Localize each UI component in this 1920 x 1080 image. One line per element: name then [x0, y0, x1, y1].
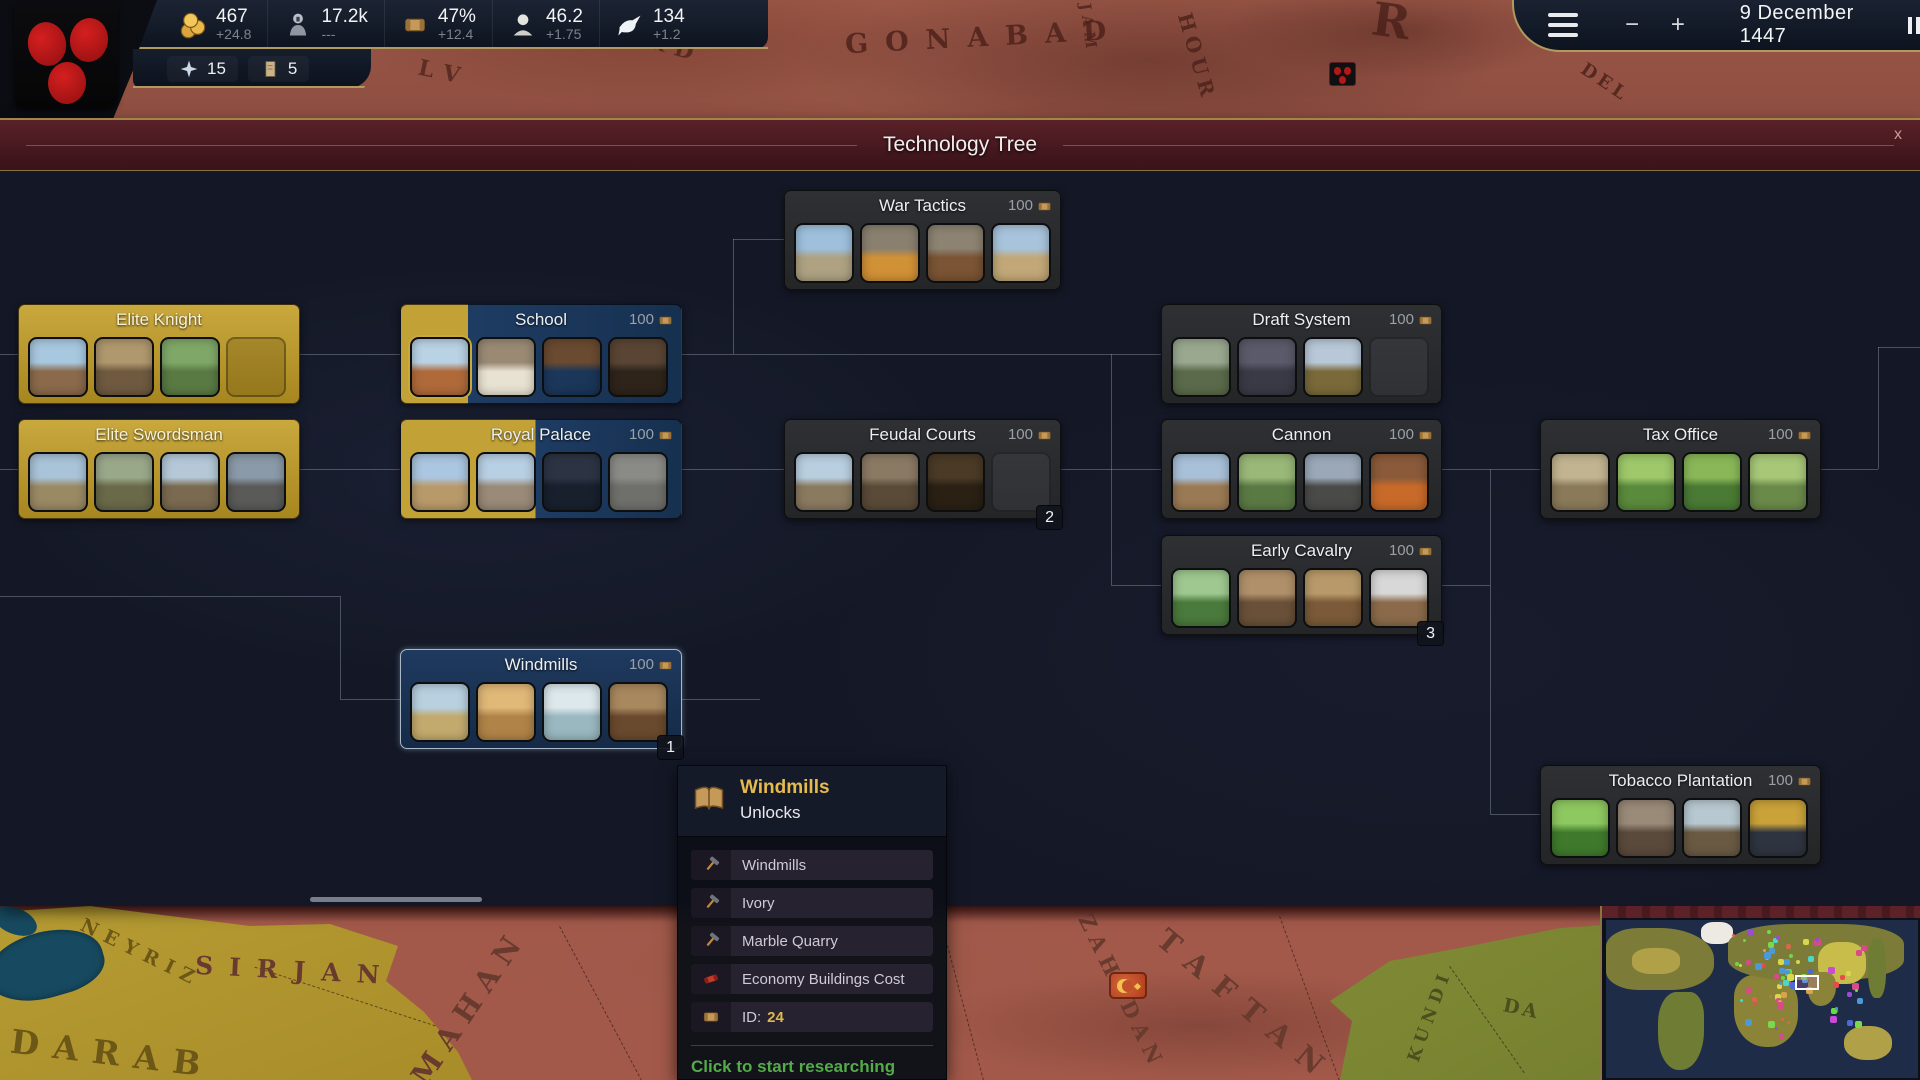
thumb-crop-rows [1682, 452, 1742, 512]
speed-plus-button[interactable]: + [1662, 11, 1694, 39]
scroll-icon [1796, 427, 1813, 441]
thumb-books [542, 337, 602, 397]
minimap-country-speck [1855, 1021, 1862, 1028]
minimap-landmass [1844, 1026, 1892, 1060]
minimap-country-speck [1808, 956, 1814, 962]
minimap-country-speck [1830, 1016, 1837, 1023]
player-country-flag[interactable] [14, 4, 118, 108]
minimap[interactable] [1600, 906, 1920, 1080]
minimap-landmass [1632, 948, 1680, 974]
tech-node-royal-palace[interactable]: Royal Palace100 [400, 419, 682, 519]
resource-delta: +12.4 [438, 27, 476, 42]
thumb-cavalry-charge [1303, 568, 1363, 628]
thumb-gold-emblem [1748, 798, 1808, 858]
thumb-manor-grounds [1748, 452, 1808, 512]
game-date: 9 December 1447 [1740, 2, 1896, 48]
minimap-country-speck [1774, 974, 1779, 979]
scroll-icon [657, 427, 674, 441]
thumb-vineyard [1171, 568, 1231, 628]
scroll-icon [1796, 773, 1813, 787]
thumb-scholars [608, 337, 668, 397]
tech-node-cost: 100 [1389, 311, 1414, 328]
scroll-icon [401, 11, 429, 39]
thumb-farmland [1237, 452, 1297, 512]
hammer-icon [691, 926, 731, 956]
minimap-country-speck [1747, 929, 1754, 936]
resource-delta: +1.2 [653, 27, 685, 42]
scroll-icon [691, 1002, 731, 1032]
minimap-country-speck [1745, 1019, 1752, 1026]
thumb-castle-walls [28, 452, 88, 512]
minimap-landmass [1658, 992, 1704, 1070]
minimap-landmass [1868, 938, 1886, 998]
thumb-plantation-vale [1682, 798, 1742, 858]
minimap-country-speck [1768, 1021, 1775, 1028]
tech-connector [300, 354, 400, 355]
resource-delta: +1.75 [546, 27, 583, 42]
minimap-country-speck [1861, 945, 1867, 951]
tech-node-elite-knight[interactable]: Elite Knight [18, 304, 300, 404]
tooltip-unlock-row: Ivory [691, 888, 933, 918]
tech-connector [1821, 469, 1878, 470]
ottoman-flag-marker[interactable] [1109, 972, 1147, 999]
red-scroll-icon [691, 964, 731, 994]
tooltip-row-label: Windmills [742, 857, 806, 874]
badge-prestige[interactable]: 15 [167, 56, 238, 82]
minimap-landmass [1734, 975, 1798, 1047]
tech-connector [0, 469, 18, 470]
thumb-school-building [410, 337, 470, 397]
tooltip-unlock-row: Windmills [691, 850, 933, 880]
thumb-soldier-band [94, 452, 154, 512]
thumb-night-tavern [542, 452, 602, 512]
minimap-country-speck [1833, 982, 1839, 988]
minimap-country-speck [1740, 999, 1743, 1002]
tech-connector [682, 469, 784, 470]
scroll-icon [1417, 427, 1434, 441]
tech-connector [340, 699, 400, 700]
tooltip-subtitle: Unlocks [740, 803, 830, 823]
minimap-country-speck [1752, 997, 1757, 1002]
minimap-country-speck [1847, 992, 1852, 997]
tech-connector [1111, 585, 1161, 586]
tooltip-row-label: ID: [742, 1009, 761, 1026]
minimap-country-speck [1755, 963, 1762, 970]
tech-node-war-tactics[interactable]: War Tactics100 [784, 190, 1061, 290]
minimap-country-speck [1828, 967, 1835, 974]
tooltip-row-label: Marble Quarry [742, 933, 838, 950]
paper-icon [260, 59, 280, 79]
tech-connector [1111, 469, 1161, 470]
tech-node-title: Elite Knight [19, 310, 299, 330]
minimap-frame [1602, 906, 1920, 918]
tech-connector [1878, 347, 1920, 348]
book-icon [691, 781, 727, 813]
player-flag-marker[interactable] [1329, 62, 1356, 86]
horizontal-scrollbar[interactable] [310, 897, 482, 902]
tech-node-tobacco-plantation[interactable]: Tobacco Plantation100 [1540, 765, 1821, 865]
map-label-hour: HOUR [1173, 10, 1221, 104]
resource-diplomacy[interactable]: 134+1.2 [600, 0, 701, 49]
badge-value: 15 [207, 59, 226, 79]
thumb-palace-front [410, 452, 470, 512]
tooltip-unlock-row: Economy Buildings Cost [691, 964, 933, 994]
badge-bar: 155 [133, 49, 371, 88]
resource-delta: --- [321, 27, 367, 42]
game-screen: GONABADFERDJAMHOURLVDELR 467+24.817.2k--… [0, 0, 1920, 1080]
tech-node-cost: 100 [629, 426, 654, 443]
tech-node-cost: 100 [1768, 426, 1793, 443]
thumb-medieval-town [28, 337, 88, 397]
thumb-construction-site [991, 223, 1051, 283]
thumb-timber-inn [1237, 568, 1297, 628]
map-label-taftan: TAFTAN [1150, 922, 1342, 1080]
resource-value: 17.2k [321, 7, 367, 27]
tech-node-title: Elite Swordsman [19, 425, 299, 445]
thumb-musketeers [1171, 337, 1231, 397]
resource-bar: 467+24.817.2k---47%+12.446.2+1.75134+1.2 [133, 0, 768, 49]
tech-connector [0, 354, 18, 355]
scroll-icon [1036, 198, 1053, 212]
minimap-country-speck [1767, 930, 1771, 934]
close-icon[interactable]: x [1894, 126, 1902, 144]
resource-research[interactable]: 47%+12.4 [385, 0, 493, 49]
tech-node-cost: 100 [1389, 426, 1414, 443]
tech-node-early-cavalry[interactable]: Early Cavalry1003 [1161, 535, 1442, 635]
thumb-empty-slot [226, 337, 286, 397]
tech-connector [1490, 814, 1540, 815]
tech-connector [1878, 347, 1879, 469]
thumb-empty-slot [991, 452, 1051, 512]
thumb-empty-slot [1369, 337, 1429, 397]
minimap-country-speck [1746, 988, 1752, 994]
tech-node-order-badge: 1 [657, 735, 684, 760]
tech-node-cost: 100 [629, 311, 654, 328]
tech-connector [1111, 354, 1112, 585]
bust-icon [509, 11, 537, 39]
panel-title: Technology Tree [883, 133, 1037, 157]
minimap-country-speck [1847, 1020, 1853, 1026]
tech-node-cost: 100 [1389, 542, 1414, 559]
minimap-country-speck [1840, 975, 1845, 980]
tech-tree-canvas[interactable]: War Tactics100Elite KnightSchool100Elite… [0, 171, 1920, 906]
resource-culture[interactable]: 46.2+1.75 [493, 0, 600, 49]
soldier-icon [284, 11, 312, 39]
tooltip-unlock-row: ID:24 [691, 1002, 933, 1032]
tech-node-order-badge: 3 [1417, 621, 1444, 646]
tooltip-row-value: 24 [767, 1009, 784, 1026]
star-shape [1134, 983, 1141, 990]
tech-node-cost: 100 [629, 656, 654, 673]
minimap-country-speck [1815, 938, 1819, 942]
minimap-country-speck [1857, 998, 1863, 1004]
tech-node-cost: 100 [1768, 772, 1793, 789]
scroll-icon [1417, 312, 1434, 326]
thumb-battle-plain [1303, 337, 1363, 397]
menu-icon[interactable] [1548, 13, 1578, 37]
tech-connector [1111, 354, 1161, 355]
scroll-icon [657, 312, 674, 326]
thumb-palace-courtyard [794, 223, 854, 283]
minimap-country-speck [1778, 959, 1784, 965]
tooltip-row-label: Ivory [742, 895, 775, 912]
minimap-world[interactable] [1606, 920, 1918, 1078]
tech-node-cost: 100 [1008, 197, 1033, 214]
minimap-country-speck [1779, 1034, 1784, 1039]
tooltip-title: Windmills [740, 777, 830, 799]
minimap-country-speck [1777, 1002, 1784, 1009]
thumb-burning-fort [1369, 452, 1429, 512]
resource-value: 467 [216, 7, 251, 27]
thumb-timber-town [608, 682, 668, 742]
minimap-country-speck [1803, 939, 1809, 945]
tech-connector [0, 596, 340, 597]
minimap-country-speck [1783, 980, 1789, 986]
thumb-coin-sack [926, 452, 986, 512]
map-label-r: R [1368, 0, 1413, 50]
thumb-duel [160, 452, 220, 512]
minimap-country-speck [1784, 959, 1790, 965]
minimap-country-speck [1786, 944, 1791, 949]
badge-value: 5 [288, 59, 297, 79]
flag-dot [67, 16, 111, 65]
technology-tree-panel: Technology Tree x War Tactics100Elite Kn… [0, 118, 1920, 906]
dove-icon [616, 11, 644, 39]
coins-icon [179, 11, 207, 39]
scroll-icon [657, 657, 674, 671]
minimap-country-speck [1764, 952, 1771, 959]
tooltip-divider [691, 1045, 933, 1046]
minimap-country-speck [1808, 969, 1813, 974]
scroll-icon [1036, 427, 1053, 441]
minimap-country-speck [1789, 954, 1793, 958]
tech-connector [1441, 585, 1490, 586]
minimap-country-speck [1781, 992, 1787, 998]
badge-papers[interactable]: 5 [248, 56, 309, 82]
thumb-elephant-savanna [476, 682, 536, 742]
thumb-sword [608, 452, 668, 512]
thumb-knight-gallop [160, 337, 220, 397]
minimap-viewport[interactable] [1795, 975, 1819, 990]
tech-connector [340, 596, 341, 699]
thumb-field-cannon [1303, 452, 1363, 512]
thumb-town-square [1171, 452, 1231, 512]
minimap-country-speck [1855, 989, 1858, 992]
map-label-mahan: MAHAN [404, 922, 533, 1080]
resource-manpower[interactable]: 17.2k--- [268, 0, 384, 49]
pause-icon[interactable] [1908, 17, 1920, 34]
thumb-keep-tower [794, 452, 854, 512]
hammer-icon [691, 888, 731, 918]
crescent-icon [1117, 979, 1131, 993]
resource-value: 134 [653, 7, 685, 27]
tooltip-unlock-row: Marble Quarry [691, 926, 933, 956]
tech-connector [1490, 469, 1491, 814]
thumb-armored-host [226, 452, 286, 512]
thumb-tobacco-field [1550, 798, 1610, 858]
tech-connector [300, 469, 400, 470]
thumb-grand-manor [476, 452, 536, 512]
thumb-white-knight [1369, 568, 1429, 628]
tech-connector [682, 699, 760, 700]
thumb-knight-charge [94, 337, 154, 397]
tech-node-windmills[interactable]: Windmills1001 [400, 649, 682, 749]
resource-value: 46.2 [546, 7, 583, 27]
tooltip-hint: Click to start researching [691, 1057, 933, 1077]
tech-node-cannon[interactable]: Cannon100 [1161, 419, 1442, 519]
hammer-icon [691, 850, 731, 880]
tech-connector [682, 354, 1111, 355]
tech-node-school[interactable]: School100 [400, 304, 682, 404]
tooltip-header: Windmills Unlocks [678, 766, 946, 837]
thumb-court-gate [860, 452, 920, 512]
thumb-windmill-plain [410, 682, 470, 742]
minimap-country-speck [1846, 971, 1851, 976]
tooltip-row-label: Economy Buildings Cost [742, 971, 905, 988]
tech-connector [733, 239, 734, 354]
tech-node-draft-system[interactable]: Draft System100 [1161, 304, 1442, 404]
tech-node-cost: 100 [1008, 426, 1033, 443]
star-icon [179, 59, 199, 79]
map-label-lv: LV [416, 55, 474, 92]
tech-tooltip: Windmills Unlocks WindmillsIvoryMarble Q… [677, 765, 947, 1080]
thumb-green-field [1616, 452, 1676, 512]
tech-node-order-badge: 2 [1036, 505, 1063, 530]
resource-gold[interactable]: 467+24.8 [163, 0, 268, 49]
thumb-marble-quarry [542, 682, 602, 742]
thumb-castle-gathering [1616, 798, 1676, 858]
tech-connector [1061, 469, 1111, 470]
resource-value: 47% [438, 7, 476, 27]
thumb-whip [926, 223, 986, 283]
thumb-dark-courtyard [1237, 337, 1297, 397]
map-label-del: DEL [1577, 59, 1634, 107]
tech-node-elite-swordsman[interactable]: Elite Swordsman [18, 419, 300, 519]
tech-connector [733, 239, 784, 240]
tech-node-feudal-courts[interactable]: Feudal Courts1002 [784, 419, 1061, 519]
speed-minus-button[interactable]: − [1616, 11, 1648, 39]
thumb-tax-hall [1550, 452, 1610, 512]
resource-delta: +24.8 [216, 27, 251, 42]
panel-titlebar: Technology Tree x [0, 118, 1920, 171]
thumb-trumpet [860, 223, 920, 283]
tech-node-tax-office[interactable]: Tax Office100 [1540, 419, 1821, 519]
flag-dot [47, 61, 88, 106]
thumb-mill-interior [476, 337, 536, 397]
scroll-icon [1417, 543, 1434, 557]
topbar-right: − + 9 December 1447 [1512, 0, 1920, 52]
